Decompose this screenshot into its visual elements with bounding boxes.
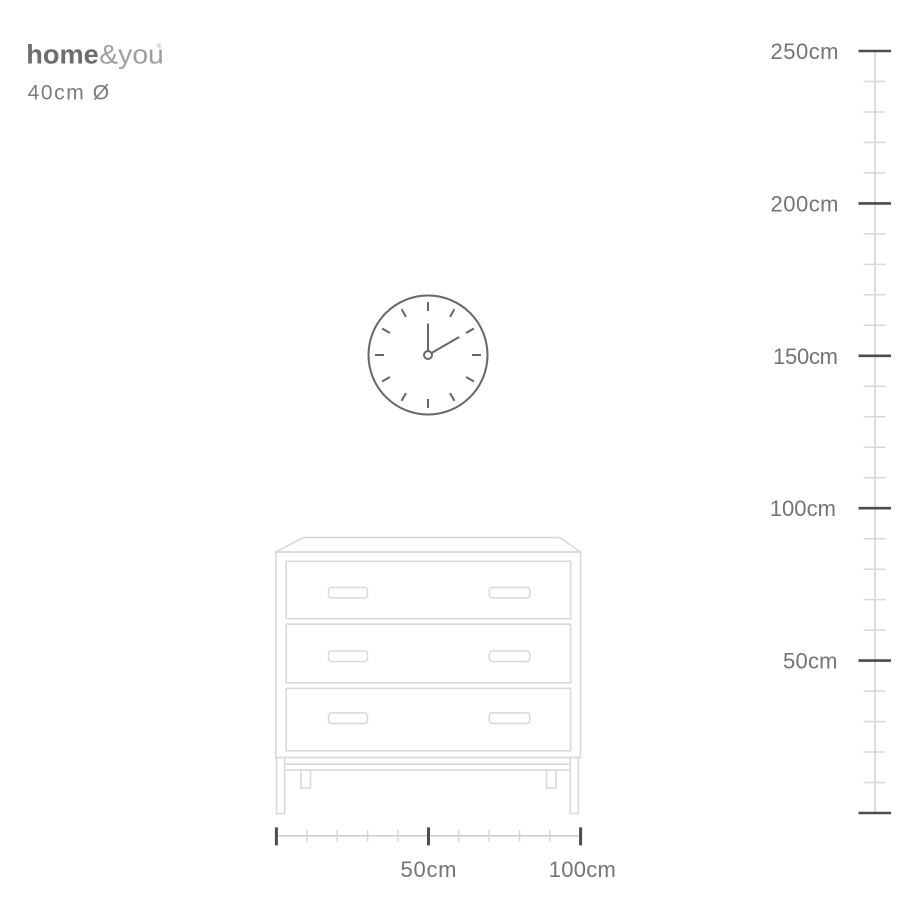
svg-text:®: ® (157, 42, 162, 50)
svg-text:50cm: 50cm (783, 649, 838, 674)
svg-text:&you: &you (99, 40, 164, 70)
svg-text:200cm: 200cm (771, 191, 839, 216)
svg-text:home: home (26, 40, 99, 70)
svg-text:100cm: 100cm (549, 857, 616, 882)
svg-text:50cm: 50cm (401, 857, 457, 882)
svg-text:100cm: 100cm (770, 496, 836, 521)
svg-text:250cm: 250cm (771, 39, 839, 64)
svg-text:150cm: 150cm (773, 344, 838, 369)
